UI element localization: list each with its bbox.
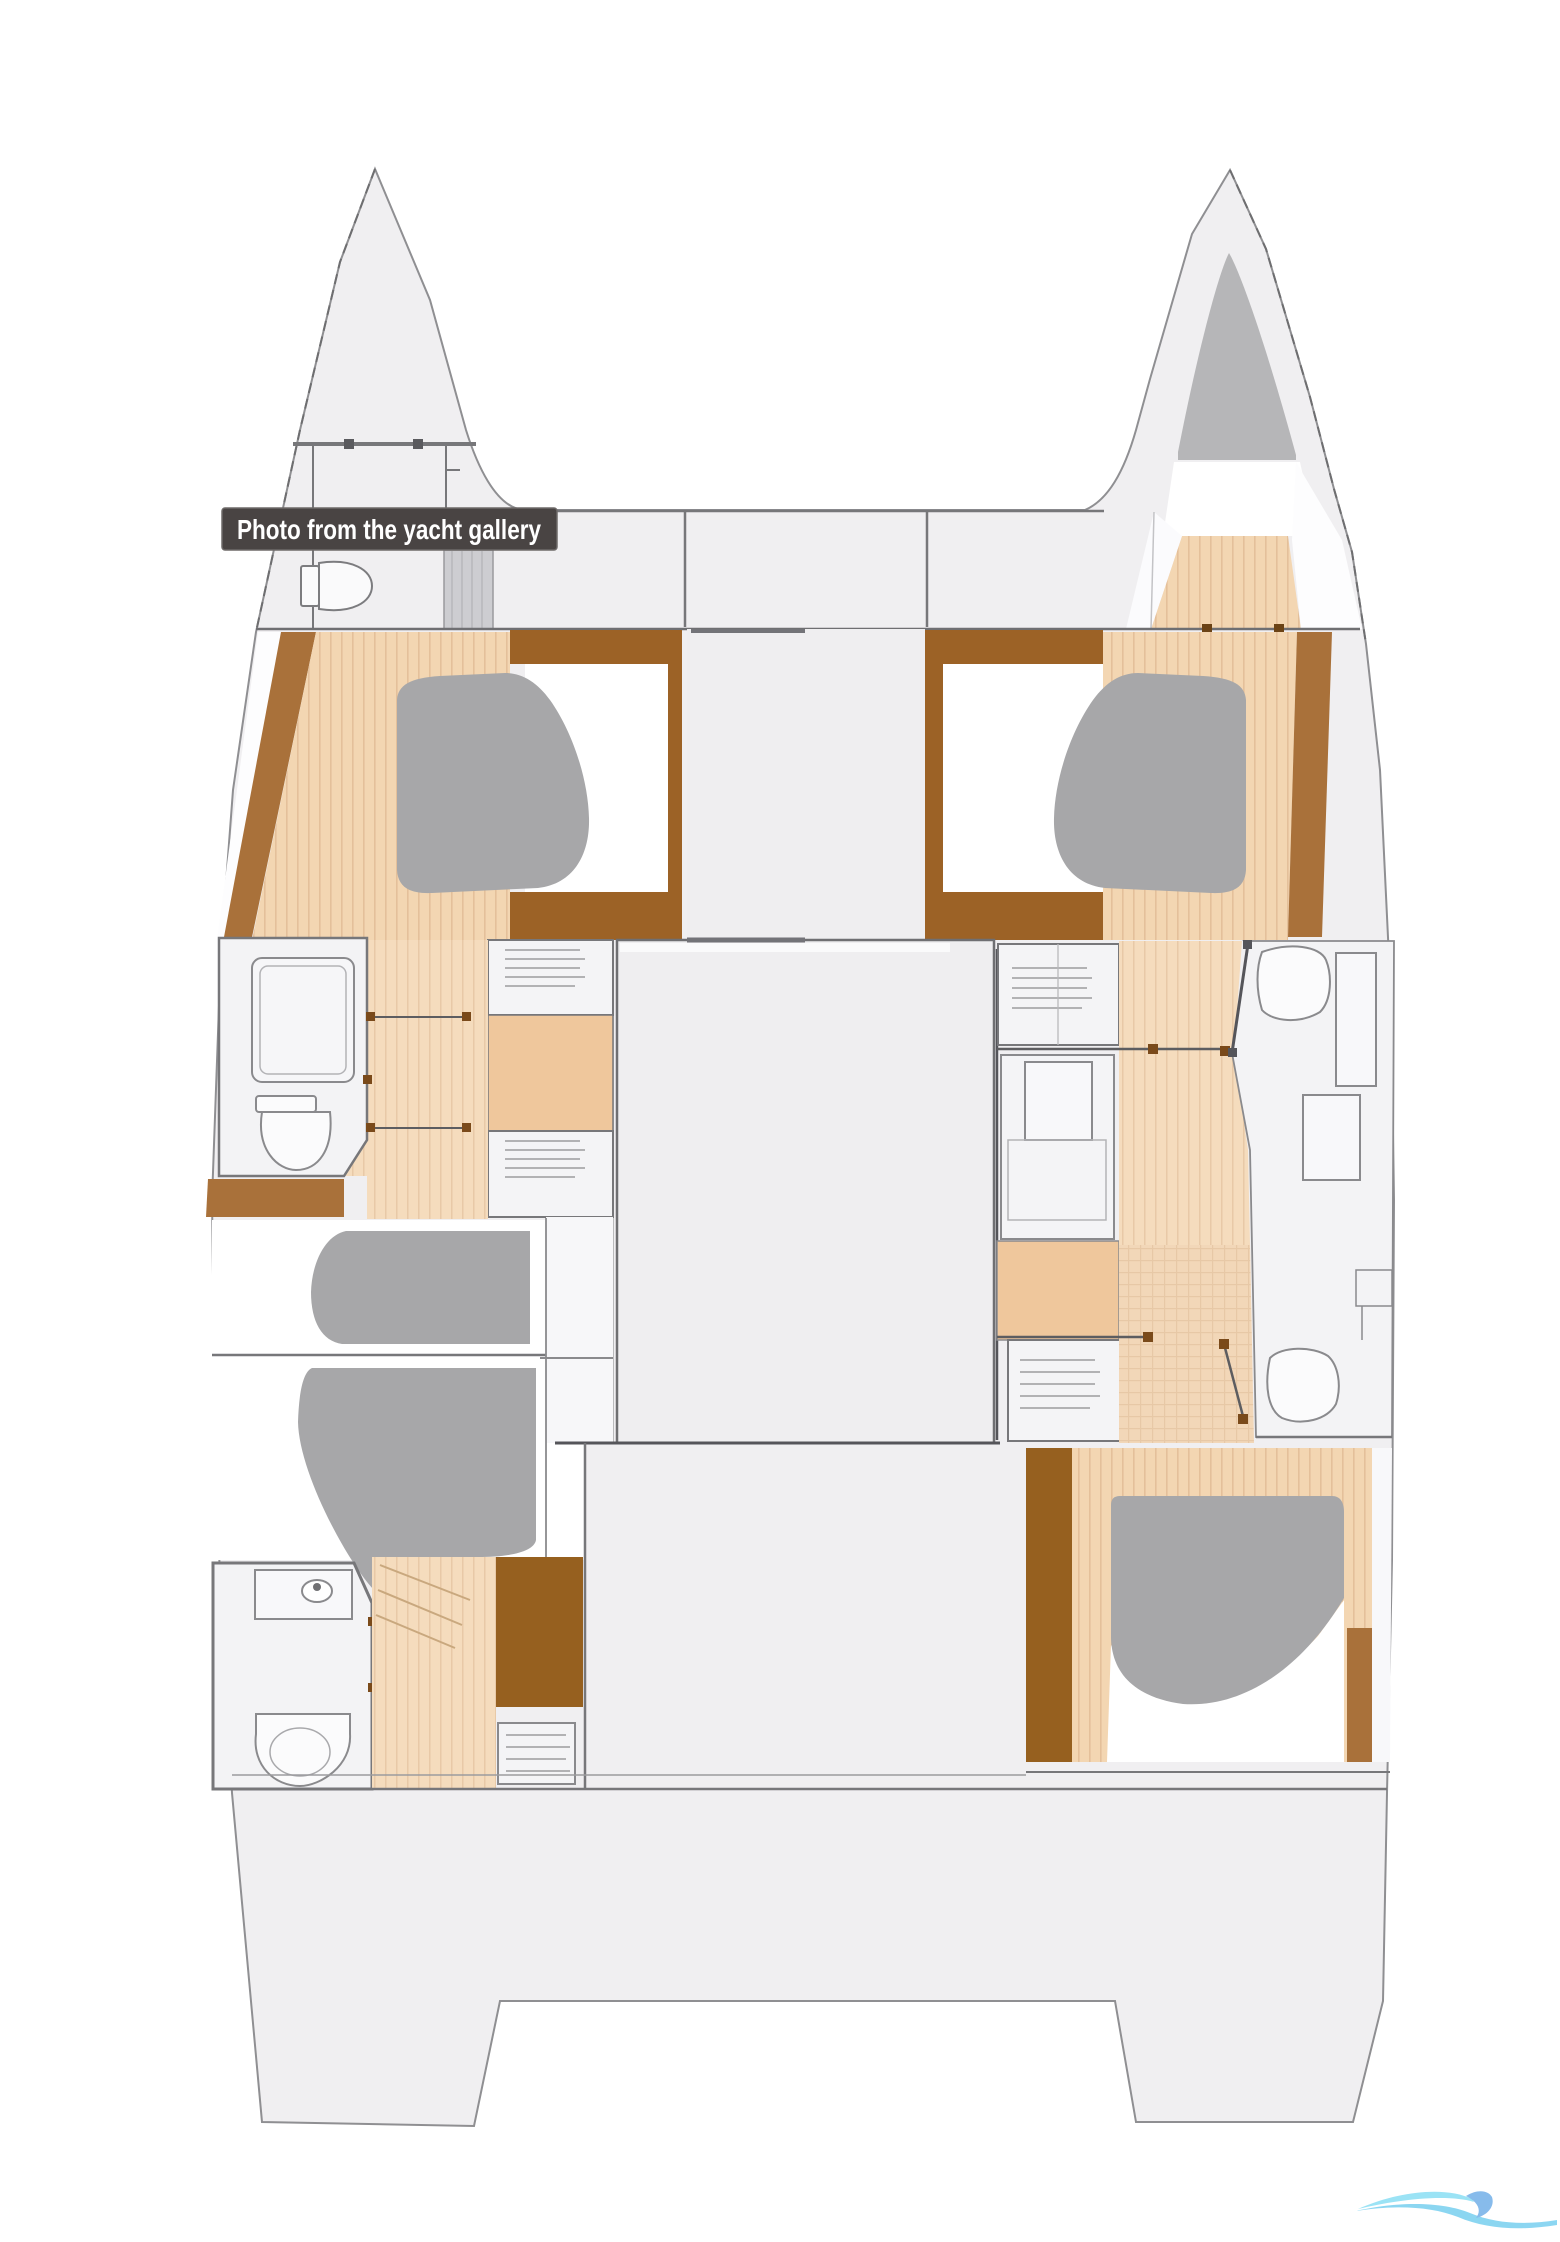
svg-text:Photo from the yacht gallery: Photo from the yacht gallery — [237, 514, 541, 545]
